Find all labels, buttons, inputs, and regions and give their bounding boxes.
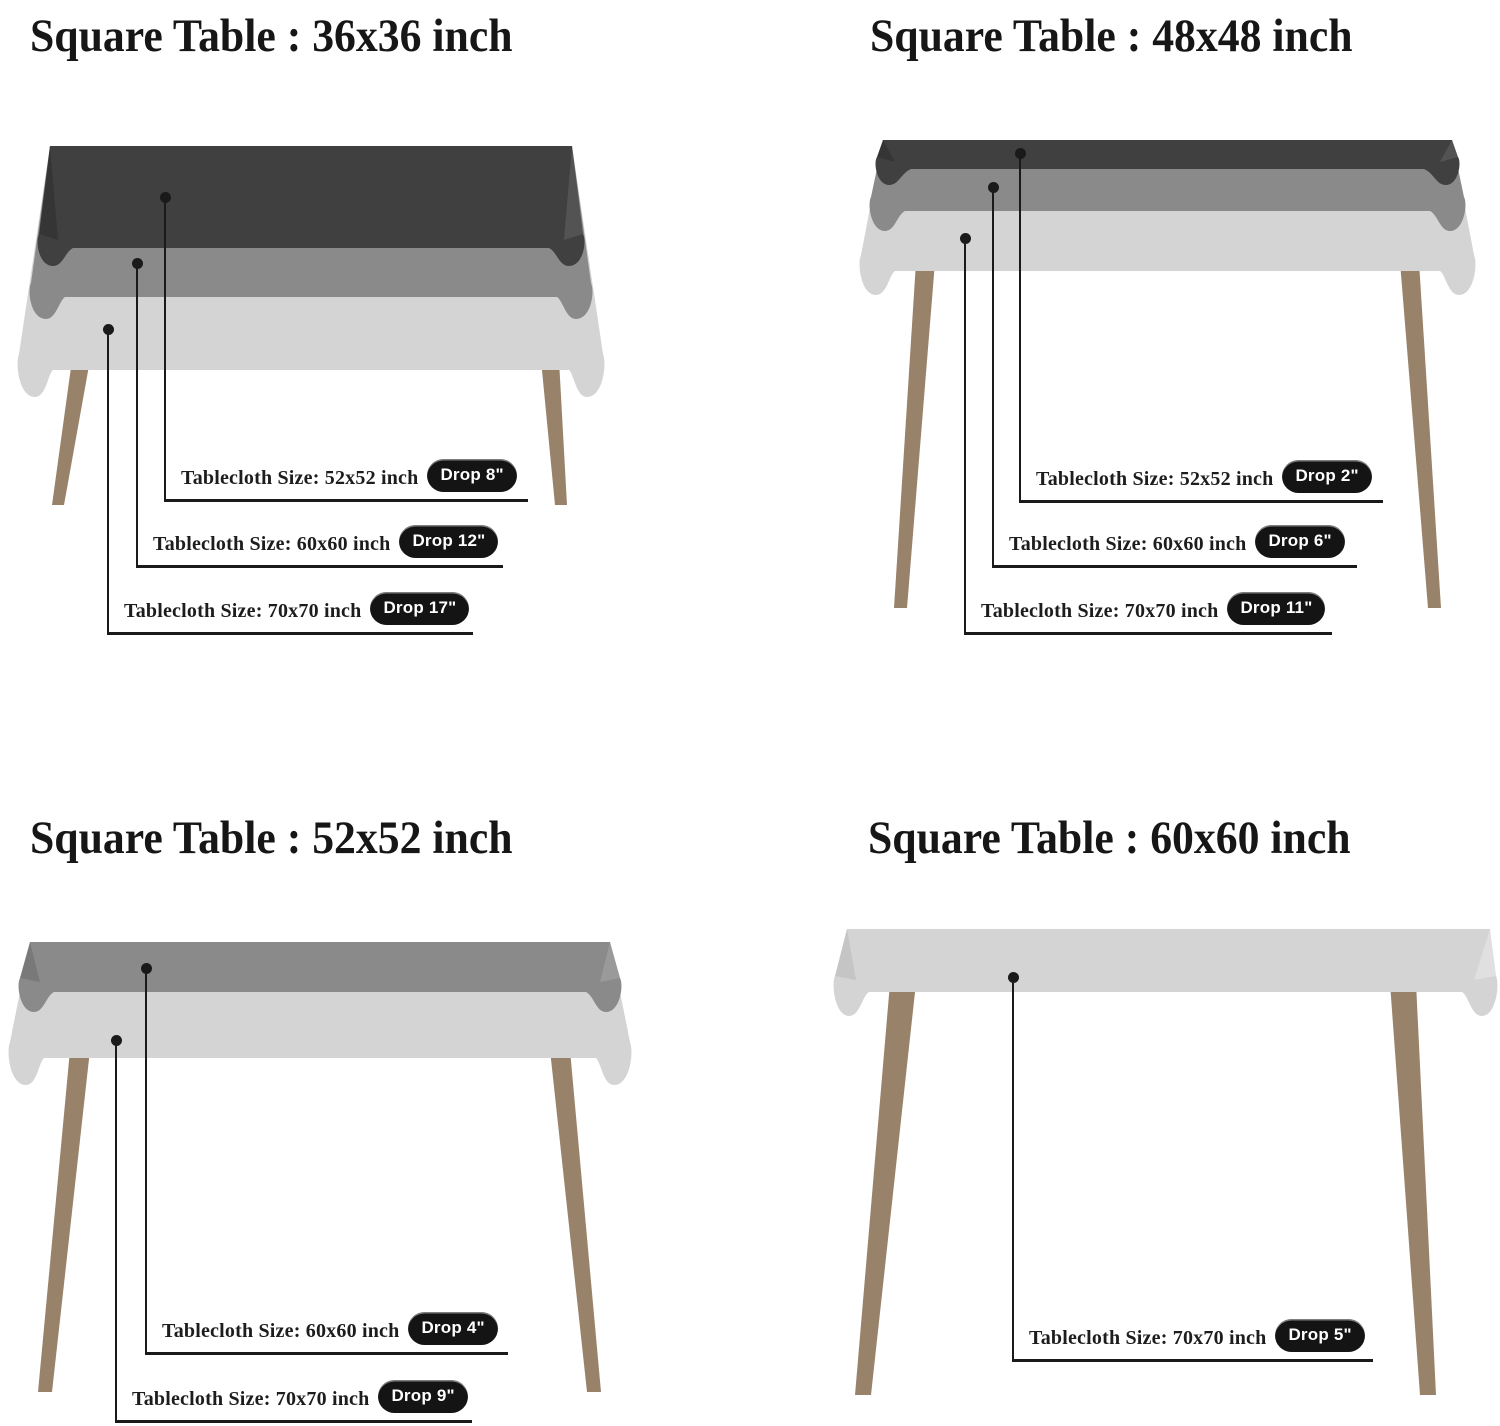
section-title-60x60: Square Table : 60x60 inch xyxy=(868,812,1351,865)
section-title-36x36: Square Table : 36x36 inch xyxy=(30,10,513,63)
table-leg-left xyxy=(894,262,935,608)
drop-badge: Drop 17" xyxy=(370,592,469,625)
drop-badge: Drop 5" xyxy=(1275,1319,1364,1352)
section-title-48x48: Square Table : 48x48 inch xyxy=(870,10,1353,63)
tablecloth-size-label: Tablecloth Size: 70x70 inch xyxy=(132,1389,369,1413)
table-leg-right xyxy=(1390,983,1436,1395)
callout-52x52-cloth-70x70: Tablecloth Size: 70x70 inch Drop 9" xyxy=(116,1040,472,1423)
table-leg-left xyxy=(52,360,90,505)
drop-badge: Drop 11" xyxy=(1227,592,1325,625)
table-leg-right xyxy=(541,360,567,505)
section-title-52x52: Square Table : 52x52 inch xyxy=(30,812,513,865)
callout-label-row: Tablecloth Size: 70x70 inch Drop 11" xyxy=(965,592,1332,635)
callout-48x48-cloth-70x70: Tablecloth Size: 70x70 inch Drop 11" xyxy=(965,238,1332,635)
callout-label-row: Tablecloth Size: 70x70 inch Drop 17" xyxy=(108,592,473,635)
table-leg-left xyxy=(855,983,916,1395)
tablecloth-size-label: Tablecloth Size: 70x70 inch xyxy=(981,601,1218,625)
callout-label-row: Tablecloth Size: 70x70 inch Drop 9" xyxy=(116,1380,472,1423)
table-leg-left xyxy=(38,1050,90,1392)
callout-line xyxy=(107,329,110,635)
callout-line xyxy=(1012,977,1015,1362)
table-leg-right xyxy=(550,1050,601,1392)
table-leg-right xyxy=(1400,262,1441,608)
callout-line xyxy=(964,238,967,635)
callout-60x60-cloth-70x70: Tablecloth Size: 70x70 inch Drop 5" xyxy=(1013,977,1373,1362)
tablecloth-size-label: Tablecloth Size: 70x70 inch xyxy=(124,601,361,625)
callout-label-row: Tablecloth Size: 70x70 inch Drop 5" xyxy=(1013,1319,1373,1362)
callout-36x36-cloth-70x70: Tablecloth Size: 70x70 inch Drop 17" xyxy=(108,329,473,635)
tablecloth-size-label: Tablecloth Size: 70x70 inch xyxy=(1029,1328,1266,1352)
tablecloth-size-guide: Square Table : 36x36 inch Square Table :… xyxy=(0,0,1500,1426)
drop-badge: Drop 9" xyxy=(378,1380,467,1413)
callout-line xyxy=(115,1040,118,1423)
